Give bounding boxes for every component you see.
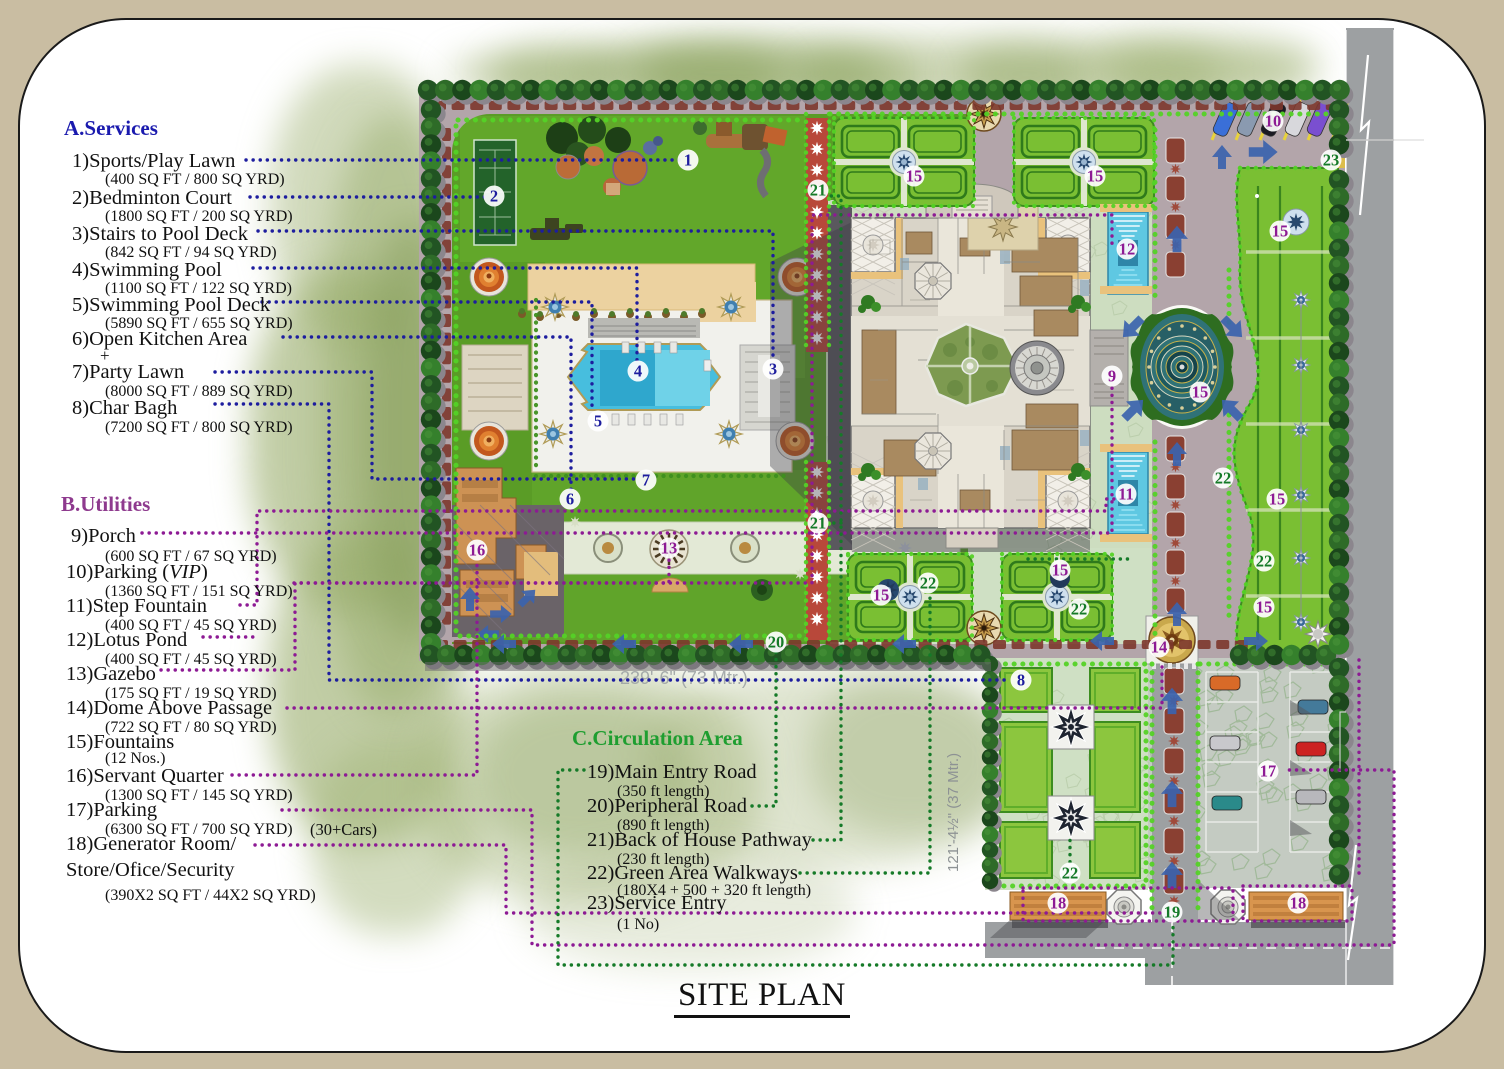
- svg-text:10: 10: [1265, 112, 1282, 131]
- svg-text:16: 16: [469, 541, 486, 560]
- svg-text:13: 13: [661, 539, 678, 558]
- svg-text:7: 7: [642, 471, 650, 490]
- svg-text:15: 15: [873, 586, 890, 605]
- svg-text:18: 18: [1050, 894, 1067, 913]
- svg-text:15: 15: [1052, 561, 1069, 580]
- svg-text:22: 22: [1071, 600, 1088, 619]
- svg-text:8: 8: [1017, 671, 1025, 690]
- svg-text:15: 15: [1087, 167, 1104, 186]
- svg-text:2: 2: [490, 187, 498, 206]
- svg-text:15: 15: [906, 167, 923, 186]
- svg-text:22: 22: [1256, 552, 1273, 571]
- svg-text:11: 11: [1118, 485, 1134, 504]
- svg-text:21: 21: [810, 514, 827, 533]
- svg-text:9: 9: [1108, 367, 1116, 386]
- svg-text:18: 18: [1290, 894, 1307, 913]
- svg-text:14: 14: [1151, 638, 1168, 657]
- svg-text:22: 22: [1062, 864, 1079, 883]
- svg-text:6: 6: [566, 490, 574, 509]
- svg-text:21: 21: [810, 181, 827, 200]
- svg-text:15: 15: [1272, 222, 1289, 241]
- svg-text:22: 22: [1215, 469, 1232, 488]
- svg-text:5: 5: [594, 412, 602, 431]
- svg-text:239'-6" (73 Mtr.): 239'-6" (73 Mtr.): [620, 668, 748, 688]
- svg-text:12: 12: [1119, 240, 1136, 259]
- svg-text:22: 22: [920, 574, 937, 593]
- svg-text:19: 19: [1164, 903, 1181, 922]
- svg-text:121'-4½" (37 Mtr.): 121'-4½" (37 Mtr.): [945, 753, 962, 872]
- svg-text:4: 4: [634, 362, 642, 381]
- svg-text:17: 17: [1260, 762, 1277, 781]
- svg-text:23: 23: [1323, 151, 1340, 170]
- svg-text:3: 3: [769, 360, 777, 379]
- svg-text:1: 1: [684, 151, 692, 170]
- svg-text:15: 15: [1269, 490, 1286, 509]
- svg-text:15: 15: [1192, 383, 1209, 402]
- svg-text:20: 20: [768, 633, 785, 652]
- svg-text:15: 15: [1256, 598, 1273, 617]
